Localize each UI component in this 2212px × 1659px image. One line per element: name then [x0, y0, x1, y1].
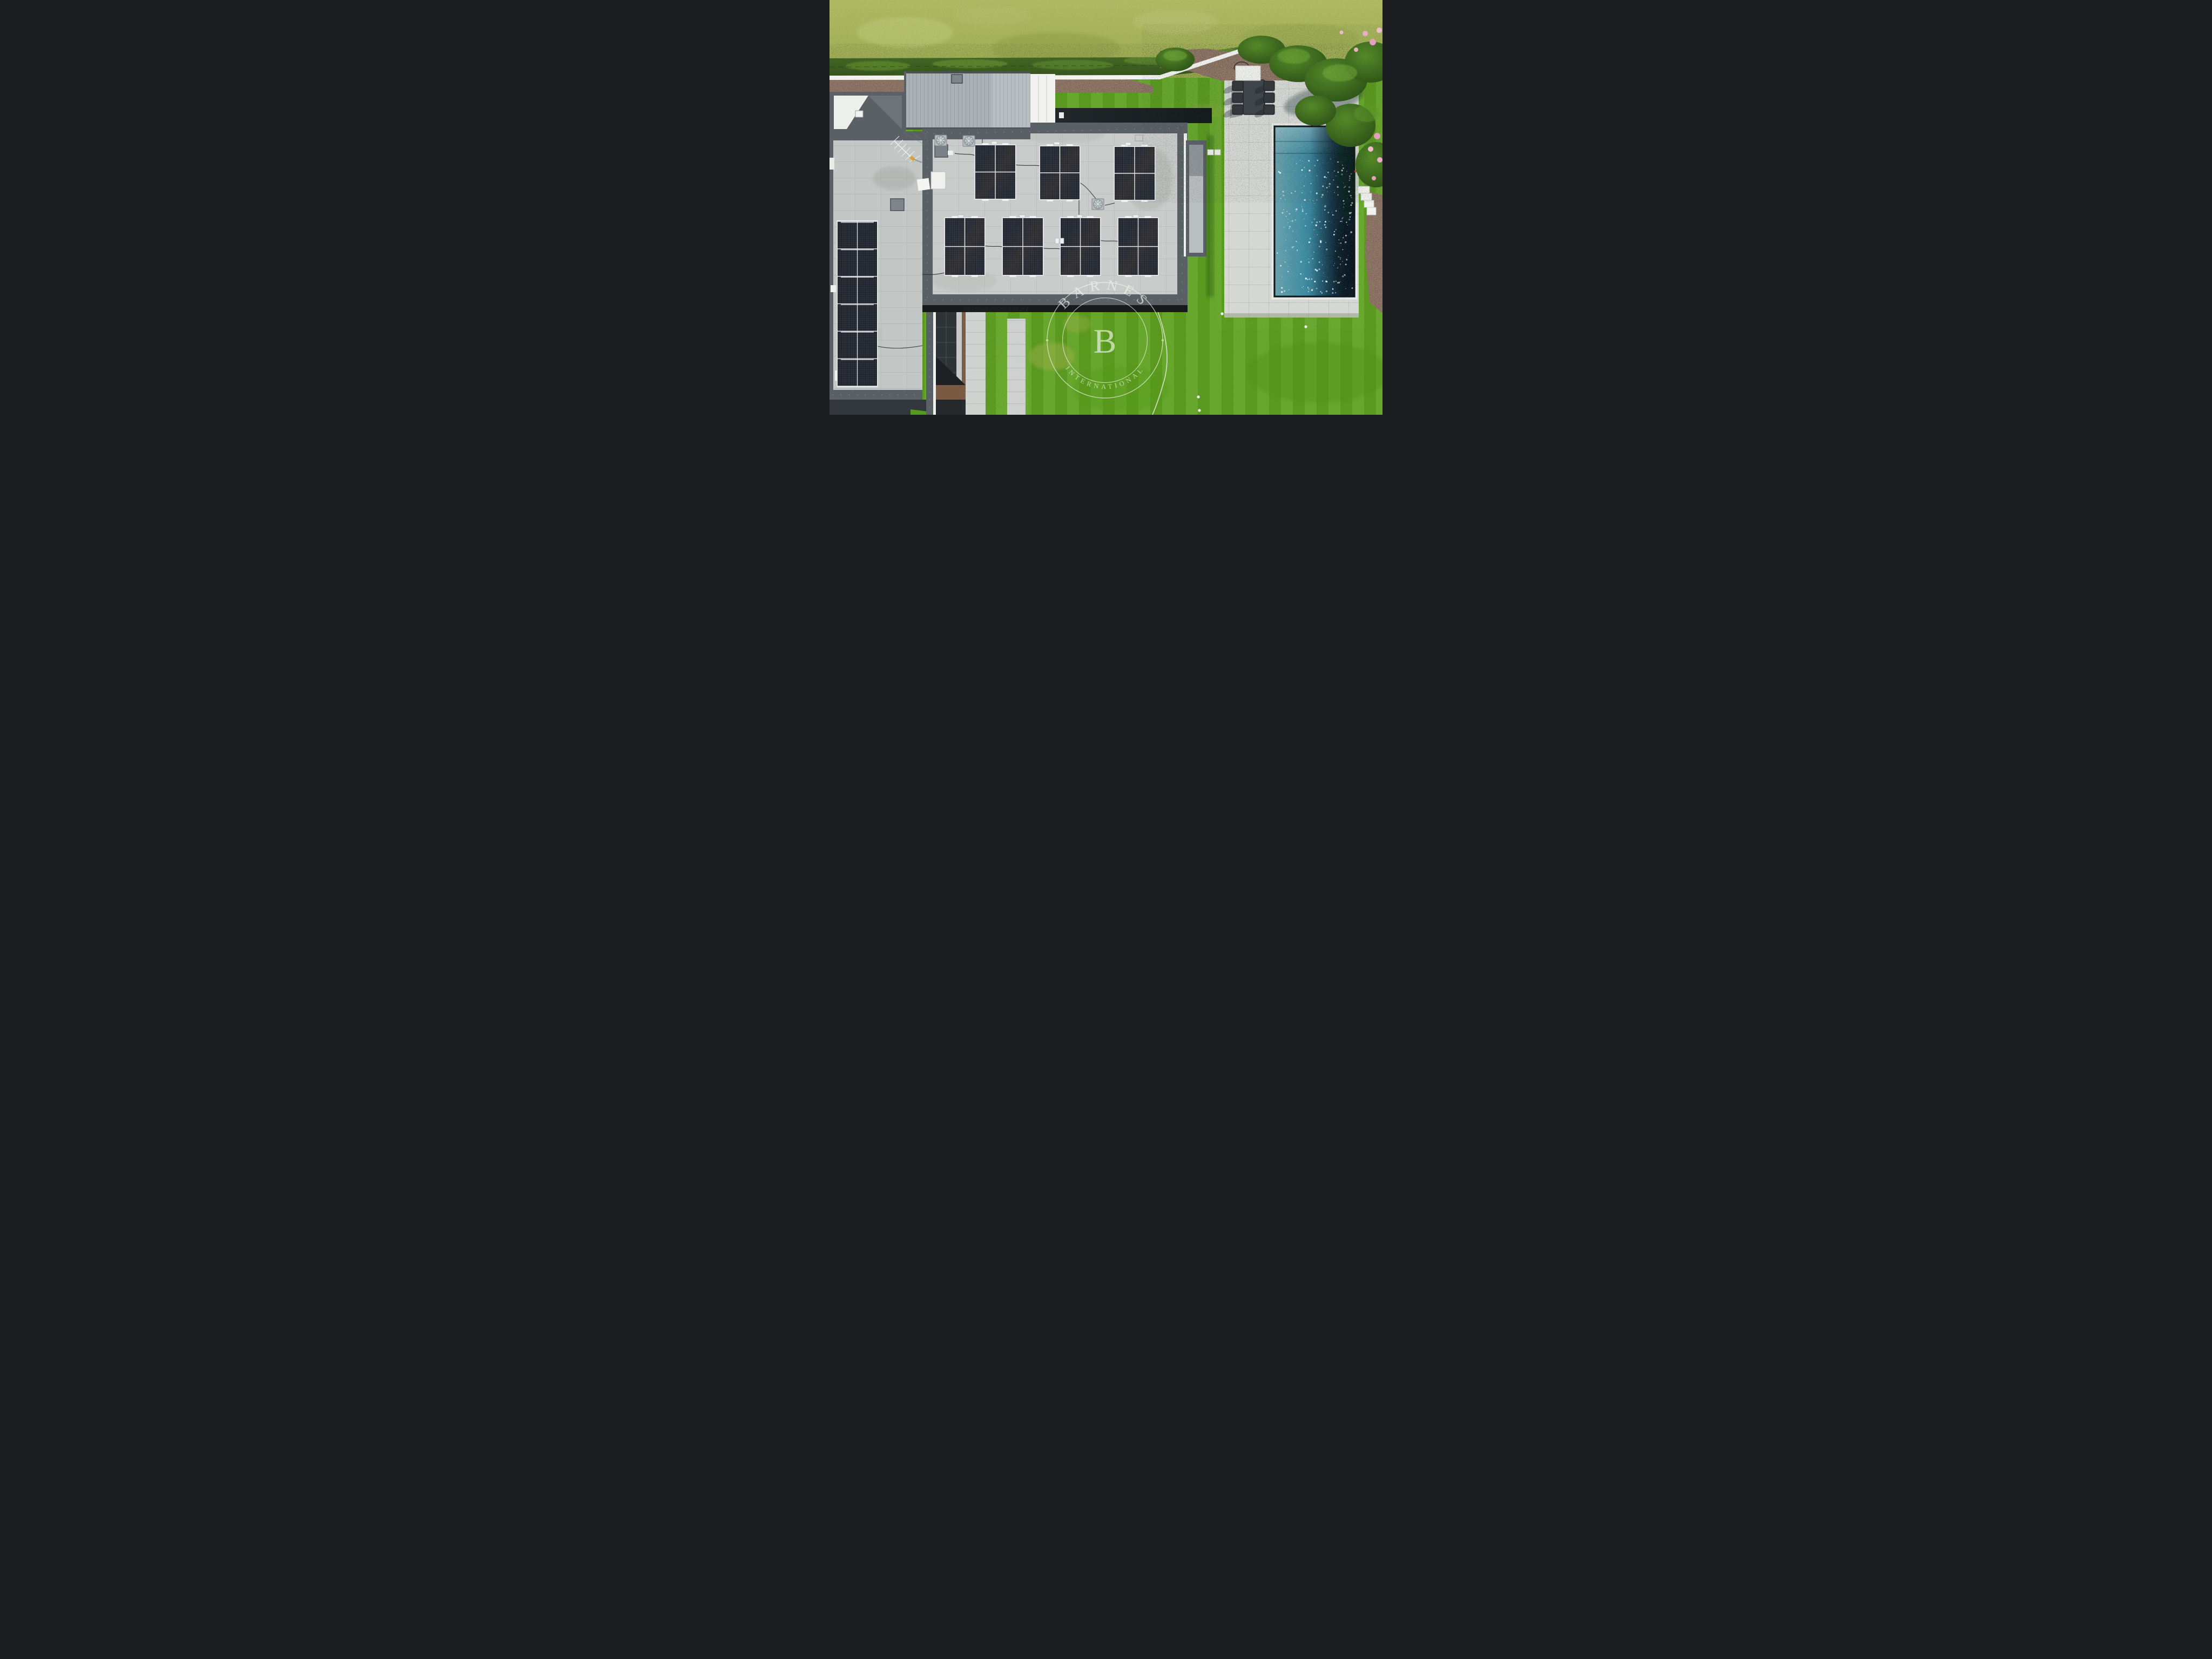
- water-sparkle: [1289, 289, 1290, 290]
- solar-rail-tab: [1047, 144, 1053, 146]
- water-sparkle: [1325, 221, 1326, 222]
- watermark-dot-left: [1046, 339, 1048, 341]
- water-sparkle: [1291, 246, 1293, 248]
- water-sparkle: [1346, 222, 1347, 223]
- solar-rail-tab: [1145, 216, 1151, 218]
- solar-rail-tab: [982, 143, 989, 145]
- left-roof-top-trim: [829, 131, 922, 140]
- wing-chimney: [855, 111, 863, 117]
- step-tread: [1367, 207, 1376, 215]
- roof-white-panel: [917, 178, 930, 191]
- junction-box: [1125, 143, 1131, 145]
- flower-cluster: [1368, 146, 1373, 152]
- water-sparkle: [1314, 230, 1314, 230]
- water-sparkle: [1300, 273, 1301, 274]
- water-sparkle: [1317, 234, 1318, 235]
- watermark-dot-right: [1162, 339, 1164, 341]
- water-sparkle: [1295, 220, 1296, 221]
- tree-grain: [1154, 32, 1382, 194]
- water-sparkle: [1336, 210, 1337, 212]
- water-sparkle: [1296, 208, 1298, 211]
- solar-rail-tab: [972, 275, 978, 277]
- water-sparkle: [1308, 261, 1310, 263]
- water-sparkle: [1307, 287, 1309, 288]
- water-sparkle: [1316, 225, 1317, 226]
- water-sparkle: [1287, 222, 1289, 223]
- junction-box: [992, 141, 997, 144]
- flower-cluster: [1354, 48, 1358, 52]
- flower-cluster: [1377, 28, 1382, 33]
- left-roof-left-trim: [829, 131, 833, 390]
- water-sparkle: [1319, 221, 1321, 222]
- left-roof-skylight: [891, 199, 904, 211]
- water-sparkle: [1284, 212, 1285, 212]
- left-roof-white-box: [829, 158, 834, 170]
- water-sparkle: [1280, 198, 1282, 199]
- water-sparkle: [1305, 225, 1306, 226]
- water-sparkle: [1326, 291, 1327, 292]
- terrace-edge-shadow: [1224, 313, 1359, 318]
- water-sparkle: [1332, 288, 1334, 290]
- shadow-strip-white-box: [1059, 112, 1064, 118]
- water-sparkle: [1286, 211, 1287, 212]
- water-sparkle: [1296, 211, 1296, 212]
- solar-rail-tab: [1010, 216, 1016, 218]
- water-sparkle: [1285, 240, 1286, 240]
- water-sparkle: [1280, 265, 1282, 267]
- water-sparkle: [1285, 250, 1286, 251]
- water-sparkle: [1319, 261, 1320, 263]
- water-sparkle: [1316, 288, 1318, 289]
- seam-roof-glare: [992, 71, 1030, 130]
- solar-rail-tab: [1002, 143, 1009, 145]
- water-sparkle: [1287, 271, 1289, 273]
- flower-cluster: [1374, 133, 1380, 139]
- water-sparkle: [1281, 287, 1283, 288]
- solar-rail-tab: [1030, 216, 1036, 218]
- flower-cluster: [1377, 157, 1382, 163]
- water-sparkle: [1292, 231, 1293, 232]
- solar-rail-tab: [1002, 199, 1009, 201]
- water-sparkle: [1293, 246, 1294, 247]
- water-sparkle: [1317, 200, 1318, 201]
- garden-paths: [966, 312, 1026, 415]
- aerial-photo-stage: BARNES INTERNATIONAL B: [829, 0, 1382, 415]
- water-sparkle: [1314, 293, 1314, 293]
- solar-rail-tab: [1125, 216, 1131, 218]
- water-sparkle: [1301, 287, 1302, 288]
- solar-rail-tab: [1067, 144, 1073, 146]
- water-sparkle: [1304, 199, 1306, 201]
- water-sparkle: [1332, 212, 1332, 212]
- canopy-trim-column: [926, 312, 933, 415]
- water-sparkle: [1292, 220, 1293, 222]
- water-sparkle: [1277, 253, 1278, 254]
- sprinkler-head: [1304, 325, 1307, 328]
- solar-rail-tab: [1047, 199, 1053, 201]
- water-sparkle: [1296, 241, 1297, 242]
- water-sparkle: [1321, 228, 1322, 229]
- water-sparkle: [1285, 257, 1285, 257]
- water-sparkle: [1289, 213, 1290, 214]
- water-sparkle: [1325, 205, 1326, 205]
- water-sparkle: [1312, 258, 1313, 259]
- solar-rail: [841, 276, 874, 278]
- water-sparkle: [1336, 229, 1337, 230]
- vent-hub: [1097, 203, 1098, 205]
- seam-roof-band: [904, 71, 1055, 131]
- water-sparkle: [1340, 221, 1341, 222]
- water-sparkle: [1309, 278, 1310, 280]
- brown-wall-vertical: [962, 312, 966, 385]
- water-sparkle: [1341, 218, 1343, 219]
- junction-box: [1060, 238, 1064, 244]
- water-sparkle: [1312, 288, 1313, 289]
- solar-rail-tab: [1142, 200, 1148, 202]
- solar-rail-tab: [1067, 275, 1074, 277]
- water-sparkle: [1326, 248, 1327, 250]
- left-roof-stain: [873, 166, 916, 190]
- water-sparkle: [1334, 215, 1334, 215]
- water-sparkle: [1308, 259, 1309, 259]
- junction-box: [1054, 142, 1060, 145]
- solar-rail-tab: [1067, 199, 1073, 201]
- water-sparkle: [1334, 231, 1335, 232]
- water-sparkle: [1315, 269, 1317, 271]
- water-sparkle: [1311, 279, 1312, 280]
- water-sparkle: [1321, 292, 1323, 293]
- water-sparkle: [1324, 205, 1326, 207]
- brown-wall-horizontal: [936, 385, 966, 400]
- water-sparkle: [1335, 292, 1336, 293]
- water-sparkle: [1285, 199, 1286, 200]
- solar-rail-tab: [1087, 275, 1094, 277]
- water-sparkle: [1325, 242, 1326, 242]
- water-sparkle: [1288, 219, 1289, 220]
- water-sparkle: [1323, 273, 1324, 273]
- canopy-white-sliver: [933, 312, 936, 415]
- water-sparkle: [1333, 281, 1335, 282]
- water-sparkle: [1283, 209, 1284, 210]
- top-left-wing: [829, 92, 905, 132]
- left-roof-white-box: [831, 285, 836, 292]
- water-sparkle: [1284, 290, 1285, 292]
- water-sparkle: [1305, 278, 1307, 280]
- step-tread: [1364, 200, 1374, 207]
- seam-roof-left-joint: [904, 71, 906, 131]
- water-sparkle: [1282, 212, 1283, 214]
- seam-roof-top-edge: [905, 71, 1030, 73]
- water-sparkle: [1288, 266, 1289, 267]
- white-wall-sliver: [1030, 74, 1055, 123]
- water-sparkle: [1319, 246, 1320, 247]
- water-sparkle: [1314, 281, 1316, 282]
- water-sparkle: [1324, 224, 1326, 226]
- roof-small-white-box: [948, 151, 953, 155]
- water-sparkle: [1314, 203, 1315, 204]
- water-sparkle: [1325, 281, 1327, 282]
- main-roof: [891, 123, 1188, 305]
- water-sparkle: [1322, 265, 1323, 266]
- junction-box: [1055, 238, 1059, 244]
- water-sparkle: [1324, 210, 1325, 211]
- aerial-photo: BARNES INTERNATIONAL B: [829, 0, 1382, 415]
- water-sparkle: [1319, 268, 1320, 270]
- water-sparkle: [1283, 194, 1284, 196]
- water-sparkle: [1310, 238, 1311, 239]
- water-sparkle: [1313, 200, 1314, 201]
- water-sparkle: [1327, 212, 1329, 213]
- seam-roof-access-box: [952, 75, 962, 83]
- solar-rail-tab: [1125, 275, 1131, 277]
- water-sparkle: [1281, 291, 1283, 293]
- solar-rail-tab: [1145, 275, 1151, 277]
- solar-rail-tab: [1142, 145, 1148, 147]
- solar-rail-tab: [1122, 200, 1128, 202]
- water-sparkle: [1304, 219, 1304, 219]
- left-roof-bottom-trim: [829, 390, 922, 400]
- water-sparkle: [1320, 240, 1321, 242]
- water-sparkle: [1289, 228, 1290, 229]
- water-sparkle: [1316, 269, 1318, 271]
- water-sparkle: [1290, 221, 1291, 222]
- water-sparkle: [1332, 214, 1333, 215]
- water-sparkle: [1311, 222, 1312, 223]
- solar-rail-tab: [972, 216, 978, 218]
- solar-rail: [841, 304, 874, 305]
- water-sparkle: [1307, 279, 1308, 280]
- sprinkler-head: [1220, 312, 1223, 315]
- water-sparkle: [1310, 199, 1310, 200]
- path-grain: [966, 312, 1026, 415]
- sprinkler-head: [1197, 395, 1199, 398]
- water-sparkle: [1316, 221, 1318, 223]
- flower-cluster: [1363, 31, 1368, 36]
- water-sparkle: [1332, 292, 1333, 294]
- flower-cluster: [1370, 39, 1376, 45]
- water-sparkle: [1313, 252, 1314, 253]
- solar-rail-tab: [982, 199, 989, 201]
- vent-hub: [968, 140, 969, 141]
- water-sparkle: [1314, 218, 1316, 220]
- main-roof-left-trim: [922, 129, 933, 305]
- canopy-dark-base: [936, 400, 966, 415]
- tree-shadow: [1334, 221, 1353, 297]
- solar-rail: [841, 359, 874, 360]
- water-sparkle: [1284, 227, 1284, 227]
- water-sparkle: [1320, 291, 1321, 292]
- water-sparkle: [1302, 210, 1304, 212]
- water-sparkle: [1303, 286, 1304, 287]
- water-sparkle: [1352, 287, 1353, 289]
- water-sparkle: [1322, 280, 1323, 281]
- junction-box: [1020, 215, 1025, 218]
- water-sparkle: [1321, 196, 1323, 198]
- roof-skylight-box: [935, 145, 948, 157]
- water-sparkle: [1308, 291, 1310, 293]
- sprinkler-head: [1198, 409, 1201, 412]
- water-sparkle: [1282, 276, 1283, 278]
- solar-rail-tab: [1067, 216, 1074, 218]
- water-sparkle: [1301, 206, 1303, 207]
- solar-rail: [841, 332, 874, 333]
- water-sparkle: [1297, 249, 1298, 251]
- solar-array-left: [837, 220, 878, 387]
- junction-box: [1133, 215, 1138, 218]
- water-sparkle: [1302, 209, 1303, 210]
- water-sparkle: [1285, 216, 1286, 217]
- flower-cluster: [1372, 176, 1376, 180]
- solar-rail-tab: [1087, 216, 1094, 218]
- water-sparkle: [1325, 226, 1327, 228]
- water-sparkle: [1328, 221, 1330, 222]
- vent-hub: [940, 139, 941, 141]
- solar-rail: [841, 249, 874, 251]
- water-sparkle: [1289, 226, 1291, 227]
- junction-box: [958, 215, 963, 218]
- water-sparkle: [1341, 221, 1343, 222]
- solar-rail-tab: [952, 216, 958, 218]
- solar-rail-tab: [1030, 275, 1036, 277]
- water-sparkle: [1309, 241, 1310, 243]
- water-sparkle: [1300, 261, 1302, 262]
- flower-cluster: [1340, 31, 1344, 35]
- junction-box: [1077, 215, 1082, 218]
- watermark-monogram: B: [1094, 322, 1117, 360]
- trees-and-flowers: [1154, 28, 1382, 194]
- roof-white-unit: [931, 172, 946, 189]
- solar-rail-tab: [1010, 275, 1016, 277]
- water-sparkle: [1284, 261, 1285, 262]
- water-sparkle: [1333, 234, 1335, 235]
- solar-rail: [841, 222, 874, 223]
- water-sparkle: [1306, 213, 1307, 214]
- solar-rail-tab: [952, 275, 958, 277]
- water-sparkle: [1308, 288, 1310, 290]
